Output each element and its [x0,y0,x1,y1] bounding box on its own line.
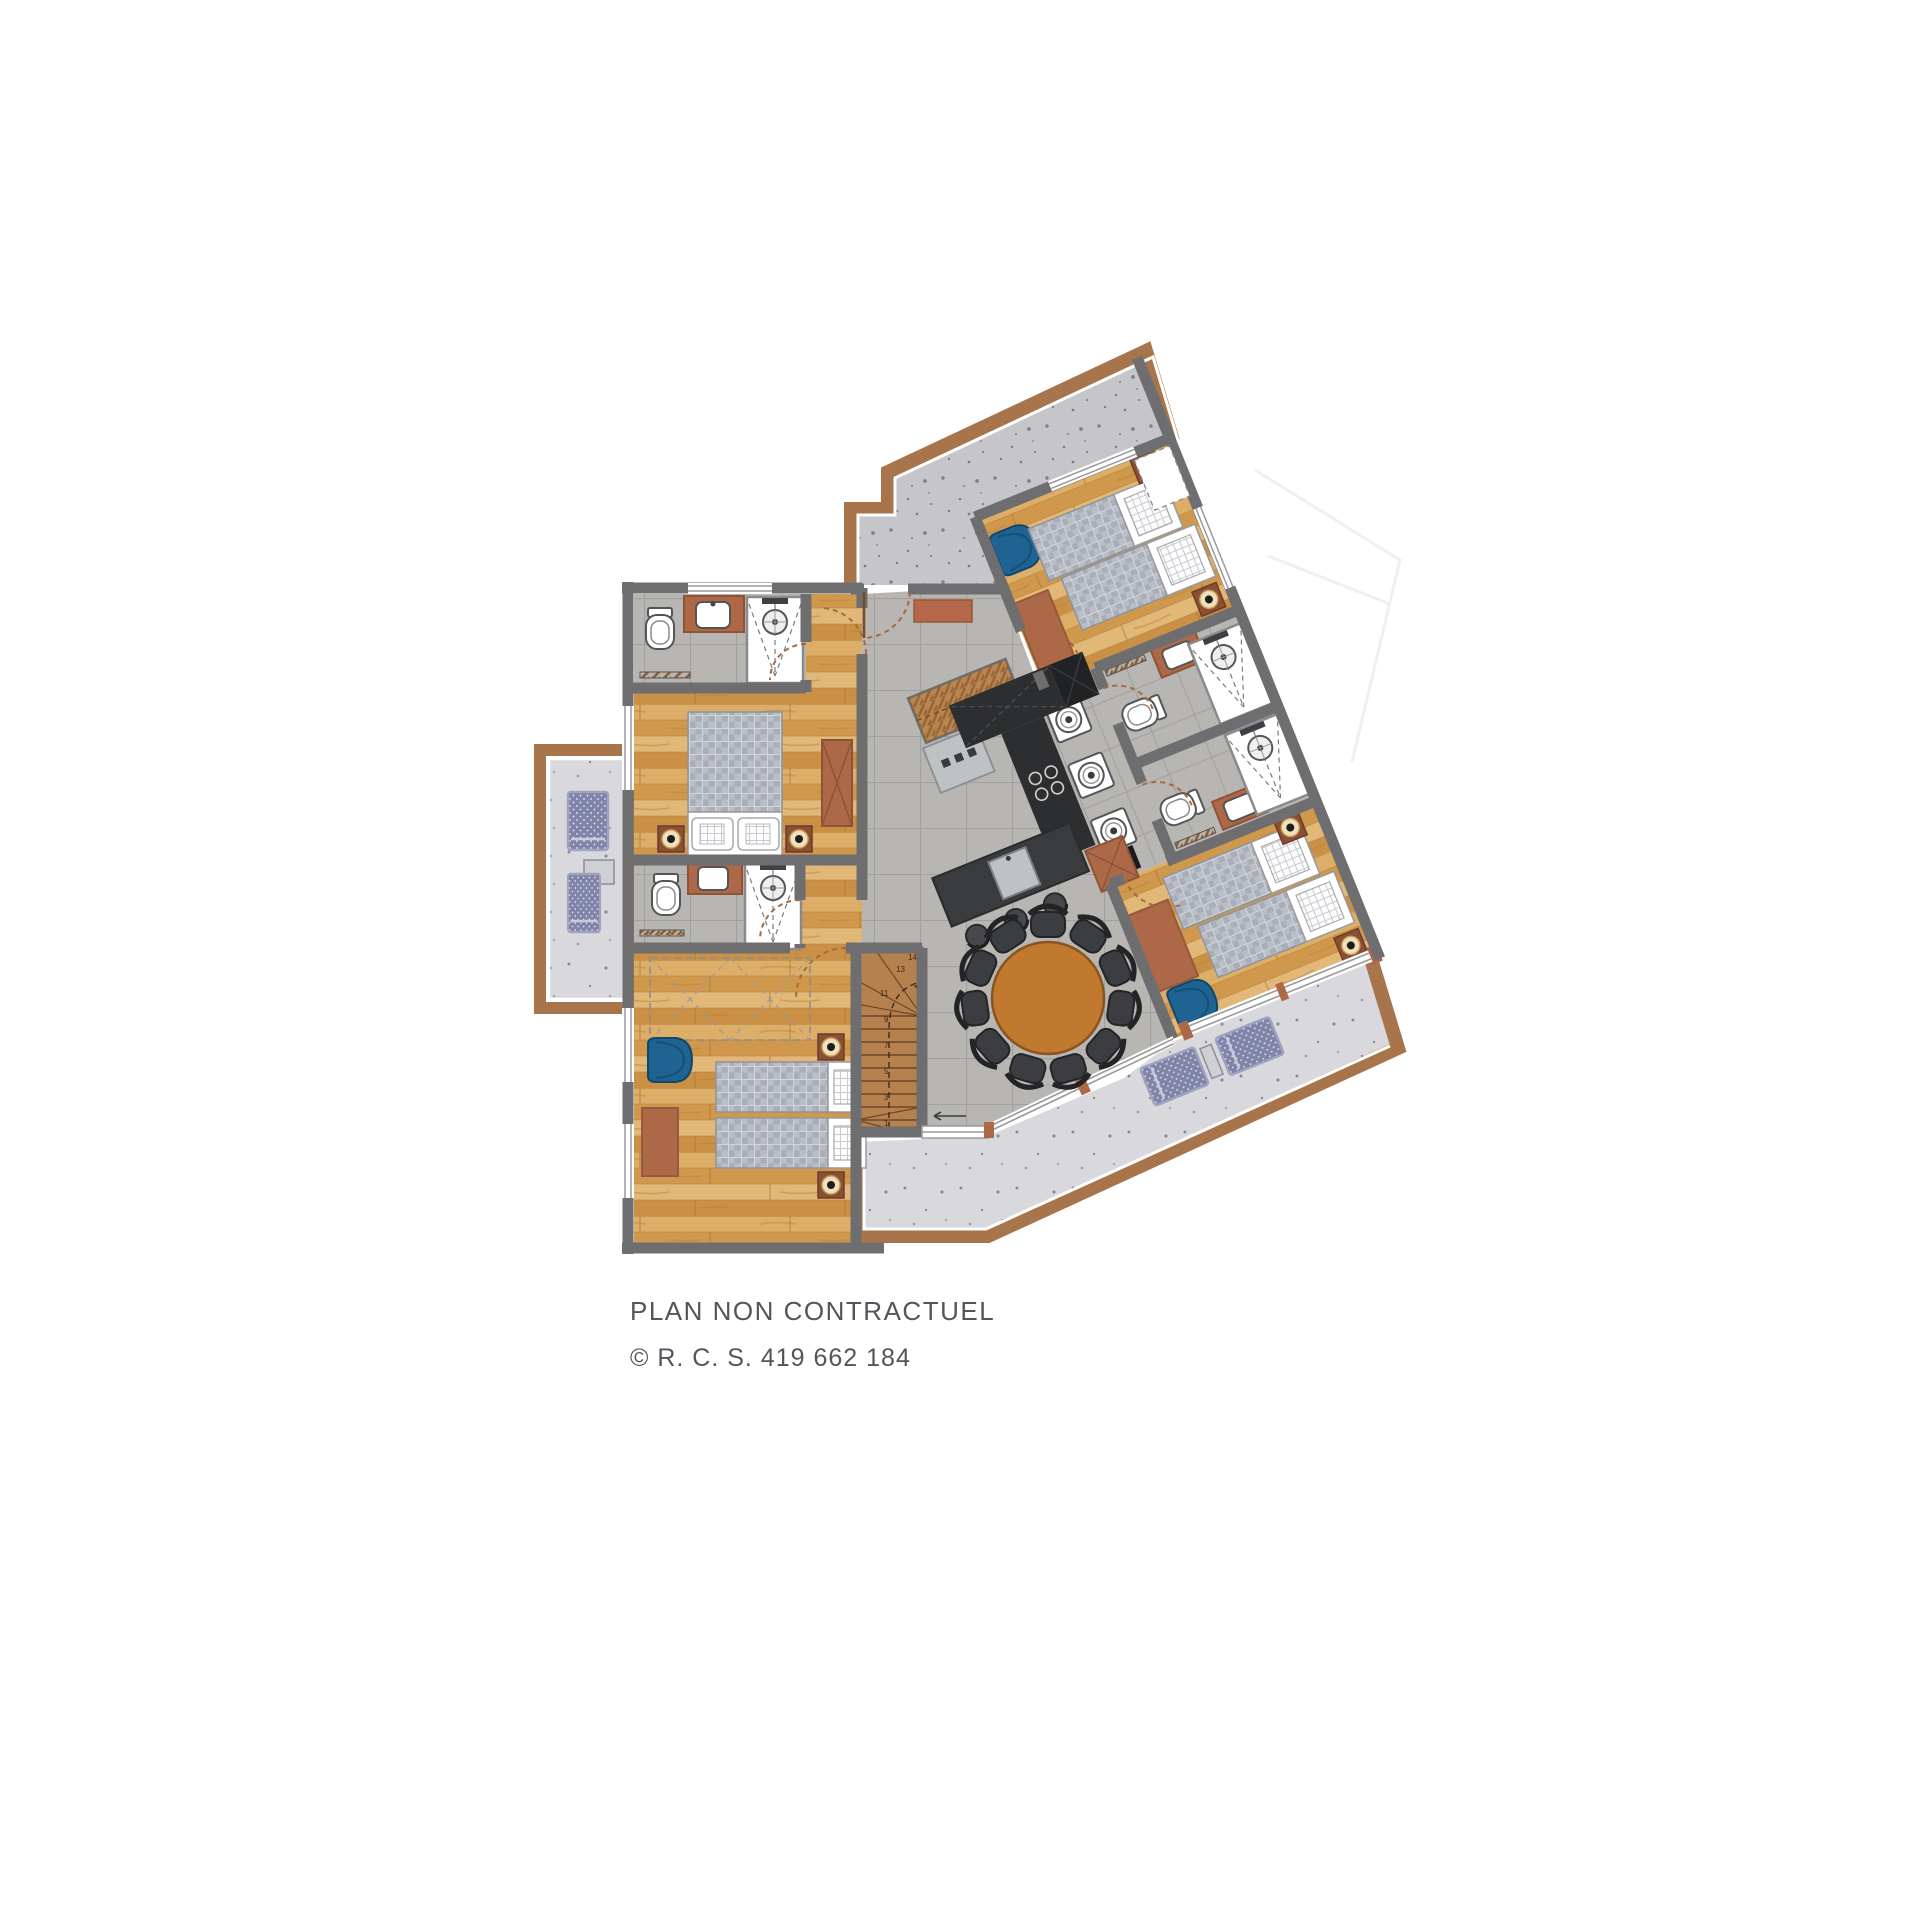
nightstand-lamp [658,826,684,852]
stairs: 1 3 5 7 9 11 13 14 [856,948,924,1132]
lounge-chair [568,874,600,932]
plan-disclaimer: PLAN NON CONTRACTUEL [630,1296,995,1327]
lounge-chair [568,792,608,850]
stair-step-number: 14 [908,953,917,962]
window [622,1008,634,1082]
towel-rail [640,672,690,678]
sink [698,867,728,890]
window [688,583,772,594]
entry-bench [914,600,972,622]
toilet [646,608,674,649]
faucet [711,602,716,607]
toilet [652,874,680,915]
terrace-left [540,750,634,1008]
stair-step-number: 9 [884,1015,889,1024]
dining-table [992,942,1104,1054]
stair-step-number: 5 [884,1067,889,1076]
stair-step-number: 3 [884,1093,889,1102]
nightstand-lamp [818,1172,844,1198]
stair-step-number: 11 [880,989,889,998]
wardrobe [822,740,852,826]
window [622,1124,634,1198]
nightstand-lamp [818,1034,844,1060]
nightstand-lamp [786,826,812,852]
corridor-top-left-floor [806,594,862,688]
stair-step-number: 7 [884,1041,889,1050]
stair-step-number: 13 [896,965,905,974]
single-bed [716,1118,866,1168]
double-bed [688,712,782,856]
page: 1 3 5 7 9 11 13 14 [0,0,1920,1920]
single-bed [716,1062,866,1112]
window [622,706,634,790]
floor-plan: 1 3 5 7 9 11 13 14 [0,0,1920,1920]
armchair-blue [648,1038,692,1082]
rug [642,1108,678,1176]
corridor-mid-left-floor [800,860,862,948]
plan-registration: © R. C. S. 419 662 184 [630,1344,911,1373]
shower [745,863,801,949]
towel-rail [640,930,684,936]
shower [747,597,803,683]
